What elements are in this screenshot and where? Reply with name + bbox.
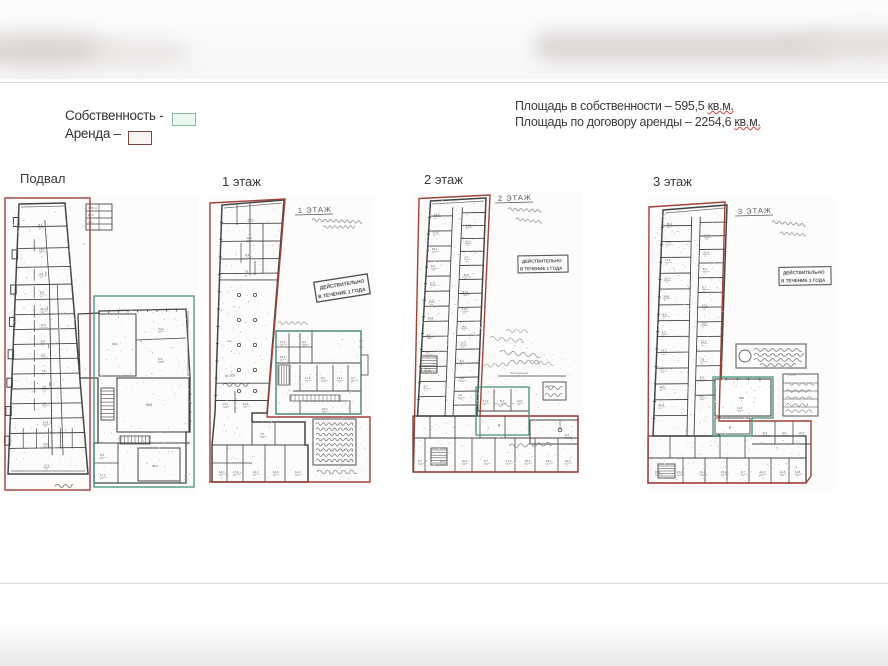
svg-text:7,8: 7,8	[42, 369, 46, 373]
svg-text:пом: пом	[224, 407, 228, 409]
svg-text:уч: уч	[42, 358, 44, 360]
svg-text:15,1: 15,1	[721, 470, 727, 474]
svg-text:8,4: 8,4	[763, 431, 767, 435]
svg-text:9,7: 9,7	[424, 385, 428, 389]
svg-text:пом: пом	[459, 381, 463, 383]
svg-text:15,1: 15,1	[459, 376, 465, 380]
svg-text:пом: пом	[431, 269, 435, 271]
svg-text:14,3: 14,3	[704, 233, 710, 237]
svg-text:17,2: 17,2	[463, 290, 469, 294]
svg-text:Экспликация: Экспликация	[510, 371, 528, 375]
svg-text:6,3: 6,3	[431, 264, 435, 268]
svg-text:пом: пом	[427, 338, 431, 340]
svg-text:уч: уч	[701, 345, 703, 347]
svg-text:1:200: 1:200	[788, 373, 796, 377]
svg-text:17,2: 17,2	[100, 473, 106, 477]
svg-text:9,7: 9,7	[464, 256, 468, 260]
svg-text:17,2: 17,2	[665, 258, 671, 262]
svg-text:КЛ-2: КЛ-2	[88, 213, 94, 217]
svg-text:7,8: 7,8	[260, 432, 264, 436]
svg-text:уч: уч	[433, 235, 435, 237]
svg-text:уч: уч	[41, 328, 43, 330]
svg-text:11,5: 11,5	[429, 299, 435, 303]
svg-text:2 ЭТАЖ: 2 ЭТАЖ	[498, 193, 532, 203]
svg-text:9,7: 9,7	[426, 350, 430, 354]
svg-text:пом: пом	[322, 381, 326, 383]
svg-text:6,3: 6,3	[42, 401, 46, 405]
svg-text:8,4: 8,4	[321, 376, 325, 380]
svg-text:21,4: 21,4	[158, 327, 164, 331]
svg-text:21,4: 21,4	[428, 316, 434, 320]
svg-text:уч: уч	[247, 241, 249, 243]
svg-text:уч: уч	[722, 475, 724, 477]
svg-text:21,4: 21,4	[664, 276, 670, 280]
svg-text:6,3: 6,3	[39, 272, 43, 276]
svg-text:уч: уч	[430, 287, 432, 289]
svg-text:14,3: 14,3	[760, 470, 766, 474]
svg-text:9,7: 9,7	[660, 367, 664, 371]
svg-text:14,3: 14,3	[40, 307, 46, 311]
svg-text:уч: уч	[281, 360, 283, 362]
svg-text:уч: уч	[664, 300, 666, 302]
svg-text:9,7: 9,7	[418, 459, 422, 463]
svg-text:9,7: 9,7	[741, 470, 745, 474]
svg-text:пом: пом	[800, 436, 804, 438]
svg-text:уч: уч	[656, 475, 658, 477]
svg-text:зал: зал	[739, 396, 744, 400]
svg-text:6,3: 6,3	[565, 433, 569, 437]
svg-text:17,2: 17,2	[677, 470, 683, 474]
svg-text:пом: пом	[159, 362, 163, 364]
svg-text:94,6: 94,6	[146, 403, 152, 407]
svg-text:14,3: 14,3	[434, 213, 440, 217]
svg-text:21,4: 21,4	[799, 431, 805, 435]
svg-text:12,6: 12,6	[41, 323, 47, 327]
svg-text:17,2: 17,2	[702, 303, 708, 307]
svg-text:15,1: 15,1	[666, 240, 672, 244]
svg-text:В ТЕЧЕНИЕ 1 ГОДА: В ТЕЧЕНИЕ 1 ГОДА	[520, 266, 563, 272]
svg-text:12,6: 12,6	[243, 402, 249, 406]
svg-text:пом: пом	[700, 399, 704, 401]
svg-text:уч: уч	[39, 228, 41, 230]
svg-text:15,1: 15,1	[432, 247, 438, 251]
svg-text:14,3: 14,3	[700, 470, 706, 474]
svg-text:12,6: 12,6	[280, 355, 286, 359]
svg-text:21,4: 21,4	[703, 250, 709, 254]
svg-text:6,3: 6,3	[458, 393, 462, 397]
svg-text:56,6: 56,6	[112, 342, 118, 346]
svg-text:14,3: 14,3	[273, 470, 279, 474]
svg-text:21,4: 21,4	[565, 459, 571, 463]
svg-text:пом: пом	[463, 295, 467, 297]
svg-text:зал: зал	[227, 339, 232, 343]
svg-text:39,6: 39,6	[152, 464, 158, 468]
svg-text:15,1: 15,1	[525, 459, 531, 463]
svg-text:11,5: 11,5	[430, 281, 436, 285]
svg-text:7,8: 7,8	[700, 358, 704, 362]
svg-text:уч: уч	[526, 464, 528, 466]
svg-text:11,5: 11,5	[462, 307, 468, 311]
svg-text:уч: уч	[435, 218, 437, 220]
svg-text:пом: пом	[704, 239, 708, 241]
svg-text:вп 105: вп 105	[225, 373, 236, 378]
svg-text:14,3: 14,3	[295, 470, 301, 474]
svg-text:17,2: 17,2	[461, 342, 467, 346]
svg-text:уч: уч	[432, 252, 434, 254]
svg-text:уч: уч	[761, 475, 763, 477]
svg-text:11,5: 11,5	[517, 399, 523, 403]
svg-text:6,3: 6,3	[41, 353, 45, 357]
svg-text:17,2: 17,2	[433, 230, 439, 234]
svg-text:уч: уч	[101, 478, 103, 480]
svg-text:14,3: 14,3	[247, 217, 253, 221]
svg-text:12,6: 12,6	[701, 340, 707, 344]
svg-text:21,4: 21,4	[465, 240, 471, 244]
svg-text:В ТЕЧЕНИЕ 1 ГОДА: В ТЕЧЕНИЕ 1 ГОДА	[781, 278, 826, 284]
svg-text:14,3: 14,3	[466, 223, 472, 227]
svg-text:уч: уч	[464, 278, 466, 280]
svg-text:21,4: 21,4	[39, 248, 45, 252]
svg-text:уч: уч	[40, 296, 42, 298]
svg-text:11,5: 11,5	[464, 273, 470, 277]
svg-text:8,4: 8,4	[302, 340, 306, 344]
svg-text:8,4: 8,4	[38, 223, 42, 227]
svg-text:пом: пом	[665, 282, 669, 284]
svg-text:пом: пом	[428, 321, 432, 323]
svg-text:15,1: 15,1	[223, 402, 229, 406]
svg-text:уч: уч	[484, 404, 486, 406]
svg-text:уч: уч	[352, 381, 354, 383]
svg-text:8,4: 8,4	[700, 376, 704, 380]
svg-text:пом: пом	[261, 437, 265, 439]
svg-text:9,7: 9,7	[484, 459, 488, 463]
svg-text:17,2: 17,2	[280, 340, 286, 344]
svg-text:8,4: 8,4	[245, 253, 249, 257]
svg-text:пом: пом	[462, 330, 466, 332]
svg-text:17,2: 17,2	[483, 399, 489, 403]
svg-text:21,4: 21,4	[462, 459, 468, 463]
svg-text:7,8: 7,8	[42, 385, 46, 389]
svg-text:14,3: 14,3	[219, 470, 225, 474]
svg-text:1 ЭТАЖ: 1 ЭТАЖ	[298, 205, 332, 215]
svg-text:8,4: 8,4	[100, 453, 104, 457]
svg-text:8,4: 8,4	[40, 291, 44, 295]
svg-text:д: д	[729, 425, 731, 429]
svg-text:8,4: 8,4	[460, 359, 464, 363]
svg-text:9,7: 9,7	[702, 285, 706, 289]
svg-text:8,4: 8,4	[663, 312, 667, 316]
svg-text:пом: пом	[44, 469, 48, 471]
svg-text:пом: пом	[466, 245, 470, 247]
svg-text:14,3: 14,3	[661, 349, 667, 353]
svg-text:14,3: 14,3	[701, 322, 707, 326]
svg-text:15,1: 15,1	[546, 459, 552, 463]
svg-text:21,4: 21,4	[246, 236, 252, 240]
svg-text:1:200: 1:200	[546, 384, 554, 388]
svg-text:17,2: 17,2	[44, 464, 50, 468]
svg-text:3 ЭТАЖ: 3 ЭТАЖ	[738, 206, 772, 216]
svg-text:7,8: 7,8	[244, 269, 248, 273]
svg-text:8,4: 8,4	[500, 399, 504, 403]
svg-text:11,5: 11,5	[795, 470, 801, 474]
svg-text:9,7: 9,7	[427, 333, 431, 337]
svg-text:пом: пом	[419, 464, 423, 466]
svg-text:уч: уч	[101, 458, 103, 460]
svg-text:ДЕЙСТВИТЕЛЬНО: ДЕЙСТВИТЕЛЬНО	[522, 258, 562, 264]
svg-text:8,4: 8,4	[41, 339, 45, 343]
svg-text:12,6: 12,6	[780, 470, 786, 474]
svg-text:пом: пом	[701, 475, 705, 477]
svg-text:уч: уч	[234, 475, 236, 477]
svg-text:д: д	[498, 423, 500, 427]
svg-text:11,5: 11,5	[659, 385, 665, 389]
svg-text:пом: пом	[303, 345, 307, 347]
svg-text:15,1: 15,1	[461, 324, 467, 328]
svg-text:6,3: 6,3	[662, 331, 666, 335]
svg-text:6,3: 6,3	[782, 431, 786, 435]
svg-text:15,1: 15,1	[655, 470, 661, 474]
svg-text:6,3: 6,3	[158, 357, 162, 361]
svg-text:21,4: 21,4	[659, 403, 665, 407]
svg-text:14,3: 14,3	[43, 420, 49, 424]
svg-text:21,4: 21,4	[322, 407, 328, 411]
svg-text:21,4: 21,4	[253, 470, 259, 474]
svg-text:14,3: 14,3	[337, 376, 343, 380]
svg-text:17,2: 17,2	[506, 459, 512, 463]
